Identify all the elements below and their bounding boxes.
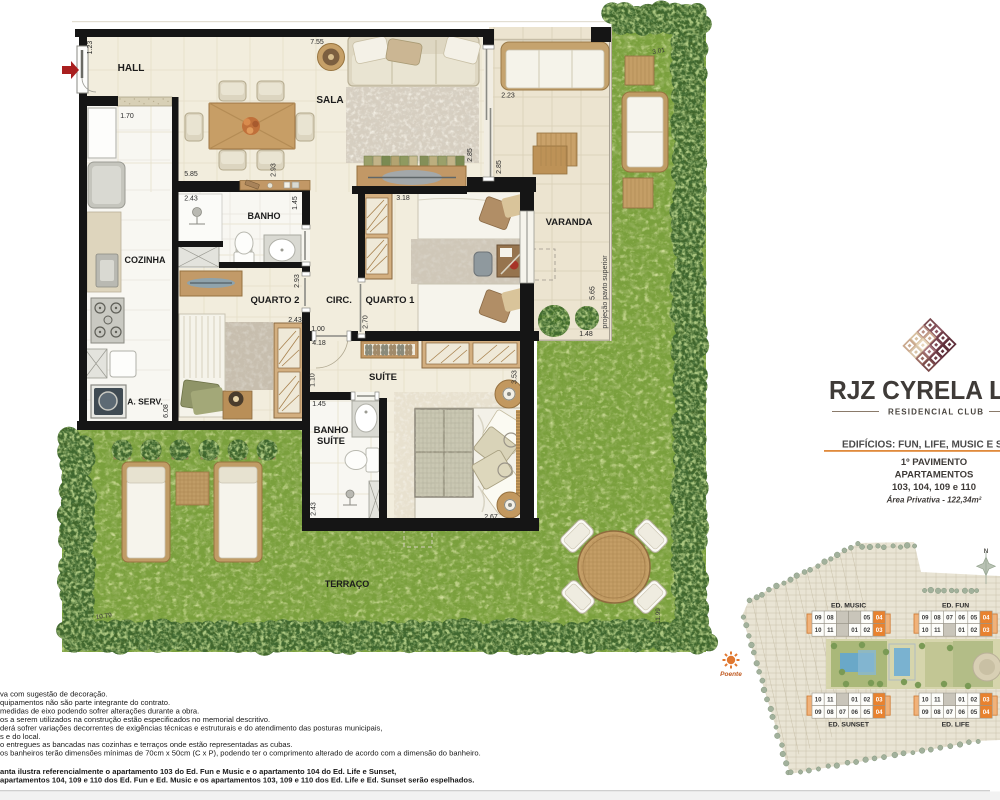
svg-text:VARANDA: VARANDA: [546, 217, 593, 228]
svg-text:apartamentos 104, 109 e 110 do: apartamentos 104, 109 e 110 dos Ed. Fun …: [0, 776, 474, 785]
svg-text:A. SERV.: A. SERV.: [127, 397, 162, 407]
svg-text:5.85: 5.85: [184, 171, 198, 178]
svg-text:2.93: 2.93: [271, 163, 278, 177]
svg-text:11: 11: [934, 697, 941, 704]
svg-text:RESIDENCIAL CLUB: RESIDENCIAL CLUB: [888, 408, 983, 417]
svg-text:1.70: 1.70: [120, 113, 134, 120]
svg-text:ED. FUN: ED. FUN: [942, 603, 969, 610]
svg-text:SUÍTE: SUÍTE: [317, 436, 345, 447]
svg-text:02: 02: [864, 627, 871, 634]
svg-text:2.93: 2.93: [294, 274, 301, 288]
svg-text:RJZ CYRELA: RJZ CYRELA: [829, 375, 983, 405]
svg-text:Área Privativa - 122,34m²: Área Privativa - 122,34m²: [886, 496, 982, 505]
svg-text:1.48: 1.48: [579, 331, 593, 338]
svg-text:BANHO: BANHO: [314, 425, 349, 436]
svg-text:05: 05: [971, 709, 978, 716]
svg-text:01: 01: [851, 697, 858, 704]
svg-text:ED. MUSIC: ED. MUSIC: [831, 603, 866, 610]
svg-text:06: 06: [958, 615, 965, 622]
svg-text:04: 04: [876, 709, 883, 716]
svg-text:03: 03: [983, 697, 990, 704]
svg-text:09: 09: [922, 709, 929, 716]
svg-text:1.23: 1.23: [87, 41, 94, 55]
svg-text:08: 08: [827, 709, 834, 716]
svg-text:01: 01: [958, 697, 965, 704]
svg-text:09: 09: [815, 709, 822, 716]
svg-text:09: 09: [922, 615, 929, 622]
svg-text:02: 02: [864, 697, 871, 704]
svg-text:2.67: 2.67: [484, 514, 498, 521]
svg-text:11: 11: [934, 627, 941, 634]
svg-text:HALL: HALL: [118, 63, 145, 74]
svg-text:10: 10: [922, 627, 929, 634]
svg-text:05: 05: [864, 709, 871, 716]
svg-text:os banheiros terão dimensões m: os banheiros terão dimensões mínimas de …: [0, 749, 481, 758]
svg-text:2.43: 2.43: [288, 317, 302, 324]
svg-text:LIV: LIV: [989, 375, 1000, 405]
svg-text:projeção pavto superior: projeção pavto superior: [602, 255, 609, 329]
svg-text:COZINHA: COZINHA: [125, 255, 166, 265]
svg-text:2.43: 2.43: [184, 196, 198, 203]
svg-text:CIRC.: CIRC.: [326, 295, 352, 306]
svg-text:03: 03: [983, 627, 990, 634]
svg-text:07: 07: [946, 709, 953, 716]
svg-text:02: 02: [971, 697, 978, 704]
svg-text:05: 05: [864, 615, 871, 622]
svg-text:03: 03: [876, 627, 883, 634]
svg-text:1.00: 1.00: [311, 326, 325, 333]
svg-text:05: 05: [971, 615, 978, 622]
svg-text:01: 01: [851, 627, 858, 634]
svg-text:03: 03: [876, 697, 883, 704]
svg-text:09: 09: [815, 615, 822, 622]
svg-text:08: 08: [934, 615, 941, 622]
svg-text:1.45: 1.45: [292, 196, 299, 210]
svg-text:07: 07: [946, 615, 953, 622]
svg-text:QUARTO 2: QUARTO 2: [251, 295, 300, 306]
svg-text:derá sofrer variações decorren: derá sofrer variações decorrentes de exi…: [0, 723, 382, 732]
svg-text:08: 08: [934, 709, 941, 716]
svg-text:06: 06: [958, 709, 965, 716]
svg-text:103, 104, 109 e 110: 103, 104, 109 e 110: [892, 482, 976, 493]
svg-text:2.43: 2.43: [311, 502, 318, 516]
svg-text:11.99: 11.99: [655, 608, 662, 624]
svg-text:SUÍTE: SUÍTE: [369, 372, 397, 383]
svg-text:2.85: 2.85: [467, 148, 474, 162]
svg-text:3.53: 3.53: [512, 370, 519, 384]
svg-text:04: 04: [983, 615, 990, 622]
svg-text:08: 08: [827, 615, 834, 622]
svg-text:10: 10: [815, 627, 822, 634]
svg-text:6.08: 6.08: [163, 404, 170, 418]
svg-text:11: 11: [827, 697, 834, 704]
svg-text:2.85: 2.85: [496, 160, 503, 174]
svg-text:4.18: 4.18: [312, 340, 326, 347]
svg-text:3.18: 3.18: [396, 195, 410, 202]
svg-text:2.70: 2.70: [363, 315, 370, 329]
svg-text:5.65: 5.65: [590, 286, 597, 300]
svg-text:ED. LIFE: ED. LIFE: [942, 722, 970, 729]
svg-text:TERRAÇO: TERRAÇO: [325, 579, 370, 589]
svg-text:04: 04: [876, 615, 883, 622]
svg-text:1.45: 1.45: [312, 401, 326, 408]
svg-text:QUARTO 1: QUARTO 1: [366, 295, 416, 306]
svg-text:10: 10: [922, 697, 929, 704]
svg-text:Poente: Poente: [720, 671, 742, 678]
svg-text:SALA: SALA: [316, 95, 343, 106]
svg-text:7.55: 7.55: [310, 39, 324, 46]
svg-text:02: 02: [971, 627, 978, 634]
svg-text:BANHO: BANHO: [248, 211, 281, 221]
svg-text:1º PAVIMENTO: 1º PAVIMENTO: [901, 457, 967, 468]
svg-text:11: 11: [827, 627, 834, 634]
svg-text:2.23: 2.23: [501, 93, 515, 100]
svg-text:EDIFÍCIOS: FUN, LIFE, MUSIC E: EDIFÍCIOS: FUN, LIFE, MUSIC E SU: [842, 438, 1000, 451]
svg-text:06: 06: [851, 709, 858, 716]
svg-text:01: 01: [958, 627, 965, 634]
svg-text:04: 04: [983, 709, 990, 716]
svg-text:07: 07: [839, 709, 846, 716]
svg-text:ED. SUNSET: ED. SUNSET: [828, 722, 870, 729]
svg-text:APARTAMENTOS: APARTAMENTOS: [895, 470, 974, 481]
svg-text:10: 10: [815, 697, 822, 704]
svg-text:1.10: 1.10: [310, 373, 317, 387]
